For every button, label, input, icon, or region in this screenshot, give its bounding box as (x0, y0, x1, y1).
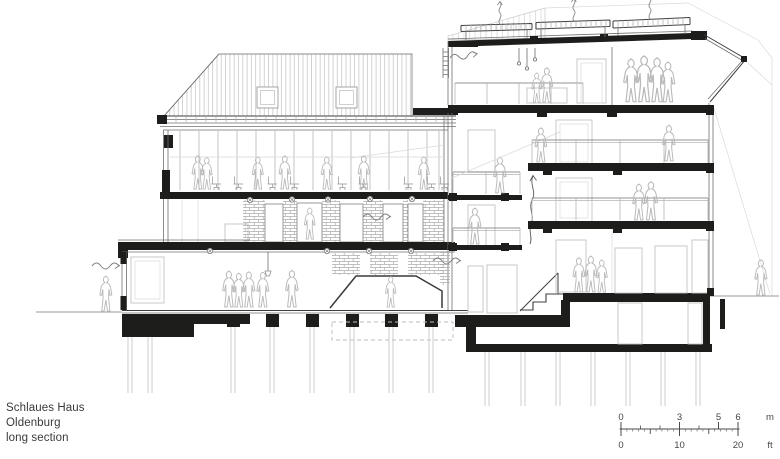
scale-ft-20: 20 (733, 440, 744, 451)
door-opening (688, 303, 702, 344)
bar-counter (527, 88, 567, 103)
door-opening (468, 266, 483, 312)
steam-squiggle (571, 0, 576, 21)
left-building (92, 54, 461, 311)
scale-ft-10: 10 (674, 440, 685, 451)
railing (532, 198, 708, 220)
pile (128, 327, 700, 406)
railing (532, 140, 708, 163)
person-figure (192, 156, 429, 189)
right-building (413, 0, 747, 313)
pendant-lamp (265, 252, 271, 276)
person-figure (100, 271, 396, 311)
section-drawing: 0 3 5 6 m 0 10 20 ft (0, 0, 780, 459)
scale-ft-0: 0 (618, 440, 623, 451)
person-figure (633, 182, 658, 220)
scale-m-0: 0 (618, 412, 623, 423)
railing (455, 83, 583, 104)
person-figure (532, 56, 675, 102)
air-flow-arrow (92, 263, 120, 269)
floor-slab (118, 240, 455, 258)
door-opening (618, 303, 642, 344)
floor-slab (160, 192, 448, 199)
floor-2 (528, 120, 712, 175)
right-wall (706, 103, 714, 296)
left-roof (164, 54, 412, 116)
left-middle-floor (164, 196, 445, 242)
brick-wall (332, 253, 444, 275)
architectural-section-sheet: 0 3 5 6 m 0 10 20 ft Schlaues Haus Olden… (0, 0, 780, 459)
scale-ft-unit: ft (767, 440, 773, 451)
window (556, 178, 592, 222)
scale-m-unit: m (766, 412, 774, 423)
wall-panel (131, 257, 164, 303)
eaves-cornice (157, 115, 456, 148)
scale-m-3: 3 (677, 412, 682, 423)
window (556, 120, 592, 166)
person-figure (573, 256, 607, 292)
project-title: Schlaues Haus (6, 401, 85, 416)
left-top-floor (162, 116, 449, 192)
prow-facade (691, 31, 747, 102)
air-flow-path (530, 176, 537, 245)
left-ground-floor (92, 248, 461, 311)
pendant-lamp (517, 48, 536, 70)
air-flow-arrow (450, 51, 478, 61)
project-city: Oldenburg (6, 416, 85, 431)
door-opening (487, 265, 517, 313)
railing (453, 228, 520, 247)
floor-3 (528, 178, 712, 233)
right-top-floor (448, 41, 675, 105)
floor-slab (413, 105, 712, 117)
right-ground-floor (556, 229, 708, 293)
caption: Schlaues Haus Oldenburg long section (6, 401, 85, 446)
person-figure (469, 157, 506, 244)
drawing-type: long section (6, 431, 85, 446)
basement (455, 293, 725, 352)
door-opening (615, 248, 642, 293)
railing (453, 172, 520, 194)
balcony (440, 113, 560, 313)
steam-squiggle (647, 0, 652, 19)
window (692, 240, 708, 293)
foundation (122, 311, 700, 407)
background-building (448, 3, 772, 296)
door-opening (655, 246, 687, 293)
scale-m-6: 6 (735, 412, 740, 423)
window (556, 240, 586, 292)
scale-bar: 0 3 5 6 m 0 10 20 ft (618, 412, 774, 451)
person-figure (755, 260, 767, 295)
scale-m-5: 5 (716, 412, 721, 423)
